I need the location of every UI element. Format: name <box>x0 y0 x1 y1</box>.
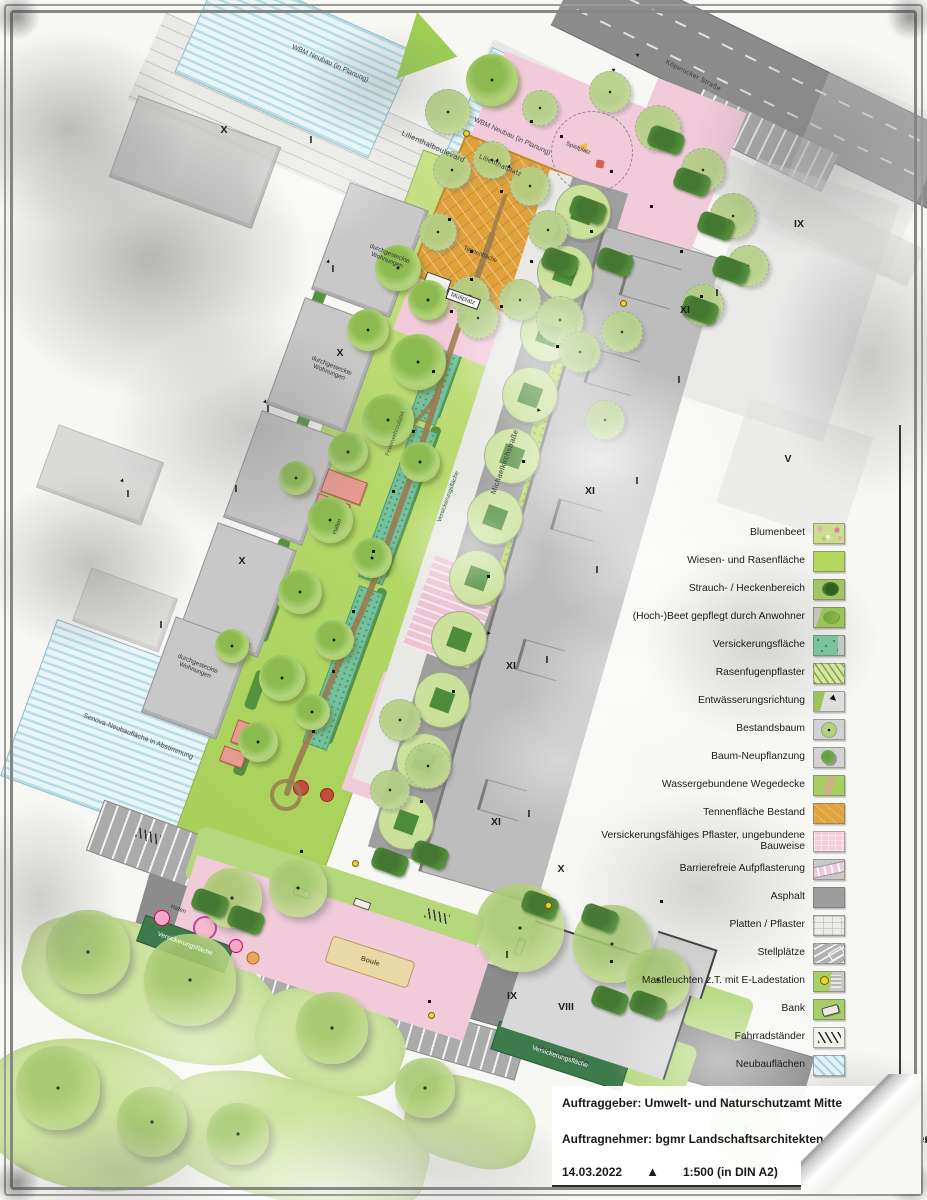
legend-label: Blumenbeet <box>750 527 805 538</box>
legend-label: Bank <box>782 1003 805 1014</box>
legend-item-hochbeet: (Hoch-)Beet gepflegt durch Anwohner <box>515 603 845 631</box>
legend-label: Entwässerungsrichtung <box>698 695 805 706</box>
legend-item-asphalt: Asphalt <box>515 883 845 911</box>
legend-label: Versickerungsfläche <box>713 639 805 650</box>
legend-swatch-bank <box>813 999 845 1020</box>
legend-item-bestandsbaum: Bestandsbaum <box>515 715 845 743</box>
legend-label: Tennenfläche Bestand <box>703 807 805 818</box>
legend-label: Asphalt <box>771 891 805 902</box>
building-storey-numeral: I <box>127 488 130 500</box>
building-storey-numeral: V <box>784 453 791 465</box>
building-storey-numeral: I <box>267 403 270 415</box>
building-storey-numeral: IX <box>794 218 804 230</box>
legend-item-versickerung: Versickerungsfläche <box>515 631 845 659</box>
legend-label: Barrierefreie Aufpflasterung <box>680 863 805 874</box>
building-storey-numeral: I <box>160 619 163 631</box>
plan-date: 14.03.2022 <box>562 1165 622 1179</box>
building-storey-numeral: XI <box>491 816 501 828</box>
legend-swatch-wegedecke <box>813 775 845 796</box>
legend-swatch-mastleuchten <box>813 971 845 992</box>
legend-swatch-wiese <box>813 551 845 572</box>
legend-label: Bestandsbaum <box>736 723 805 734</box>
legend-swatch-entwaesserung <box>813 691 845 712</box>
legend-label: Wassergebundene Wegedecke <box>662 779 805 790</box>
building-storey-numeral: I <box>678 374 681 386</box>
plan-scale: 1:500 (in DIN A2) <box>683 1165 778 1179</box>
building-storey-numeral: I <box>716 287 719 299</box>
map-neatline <box>899 425 901 1186</box>
legend-item-barrierefrei: Barrierefreie Aufpflasterung <box>515 855 845 883</box>
legend-item-wiese: Wiesen- und Rasenfläche <box>515 547 845 575</box>
legend-item-pflaster-pink: Versickerungsfähiges Pflaster, ungebunde… <box>515 827 845 855</box>
legend-label: Rasenfugenpflaster <box>716 667 805 678</box>
legend-label: Wiesen- und Rasenfläche <box>687 555 805 566</box>
legend-item-baum-neu: Baum-Neupflanzung <box>515 743 845 771</box>
legend-swatch-hochbeet <box>813 607 845 628</box>
legend-label: Strauch- / Heckenbereich <box>689 583 805 594</box>
contractor-line: Auftragnehmer: bgmr Landschaftsarchitekt… <box>562 1132 927 1146</box>
building-storey-numeral: I <box>332 263 335 275</box>
legend-swatch-bestandsbaum <box>813 719 845 740</box>
legend-label: Neubauflächen <box>736 1059 805 1070</box>
title-block: Auftraggeber: Umwelt- und Naturschutzamt… <box>552 1086 902 1187</box>
legend-swatch-platten <box>813 915 845 936</box>
legend-item-strauch: Strauch- / Heckenbereich <box>515 575 845 603</box>
legend-swatch-blumenbeet <box>813 523 845 544</box>
legend-label: Fahrradständer <box>735 1031 805 1042</box>
legend-swatch-strauch <box>813 579 845 600</box>
building-storey-numeral: X <box>220 124 227 136</box>
legend-label: (Hoch-)Beet gepflegt durch Anwohner <box>633 611 805 622</box>
legend-swatch-barrierefrei <box>813 859 845 880</box>
legend-item-fahrrad: Fahrradständer <box>515 1023 845 1051</box>
building-storey-numeral: I <box>506 949 509 961</box>
site-plan-canvas: Köpenicker StraßeLilienthalboulevardLili… <box>0 0 927 1200</box>
legend-label: Baum-Neupflanzung <box>711 751 805 762</box>
building-storey-numeral: X <box>238 555 245 567</box>
legend-swatch-tennen <box>813 803 845 824</box>
legend-item-mastleuchten: Mastleuchten z.T. mit E-Ladestation <box>515 967 845 995</box>
legend-swatch-fahrrad <box>813 1027 845 1048</box>
legend-item-platten: Platten / Pflaster <box>515 911 845 939</box>
building-storey-numeral: I <box>235 483 238 495</box>
legend-swatch-pflaster-pink <box>813 831 845 852</box>
legend-swatch-baum-neu <box>813 747 845 768</box>
legend-item-blumenbeet: Blumenbeet <box>515 519 845 547</box>
legend-item-wegedecke: Wassergebundene Wegedecke <box>515 771 845 799</box>
building-storey-numeral: XI <box>680 304 690 316</box>
legend-swatch-rasenfugen <box>813 663 845 684</box>
legend-label: Platten / Pflaster <box>729 919 805 930</box>
legend-label: Stellplätze <box>757 947 805 958</box>
legend-item-rasenfugen: Rasenfugenpflaster <box>515 659 845 687</box>
legend-item-stellplaetze: Stellplätze <box>515 939 845 967</box>
legend-item-neubau: Neubauflächen <box>515 1051 845 1079</box>
building-storey-numeral: X <box>336 347 343 359</box>
building-storey-numeral: XI <box>585 485 595 497</box>
legend-label: Versickerungsfähiges Pflaster, ungebunde… <box>565 830 805 852</box>
client-line: Auftraggeber: Umwelt- und Naturschutzamt… <box>562 1096 842 1110</box>
building-storey-numeral: I <box>636 475 639 487</box>
date-scale-row: 14.03.2022 ▲ 1:500 (in DIN A2) <box>562 1164 778 1179</box>
legend-item-bank: Bank <box>515 995 845 1023</box>
legend: BlumenbeetWiesen- und RasenflächeStrauch… <box>515 519 845 1079</box>
legend-swatch-versickerung <box>813 635 845 656</box>
north-arrow-icon: ▲ <box>646 1164 659 1179</box>
legend-label: Mastleuchten z.T. mit E-Ladestation <box>642 975 805 986</box>
building-storey-numeral: I <box>310 134 313 146</box>
legend-swatch-stellplaetze <box>813 943 845 964</box>
legend-item-tennen: Tennenfläche Bestand <box>515 799 845 827</box>
legend-swatch-neubau <box>813 1055 845 1076</box>
legend-item-entwaesserung: Entwässerungsrichtung <box>515 687 845 715</box>
legend-swatch-asphalt <box>813 887 845 908</box>
